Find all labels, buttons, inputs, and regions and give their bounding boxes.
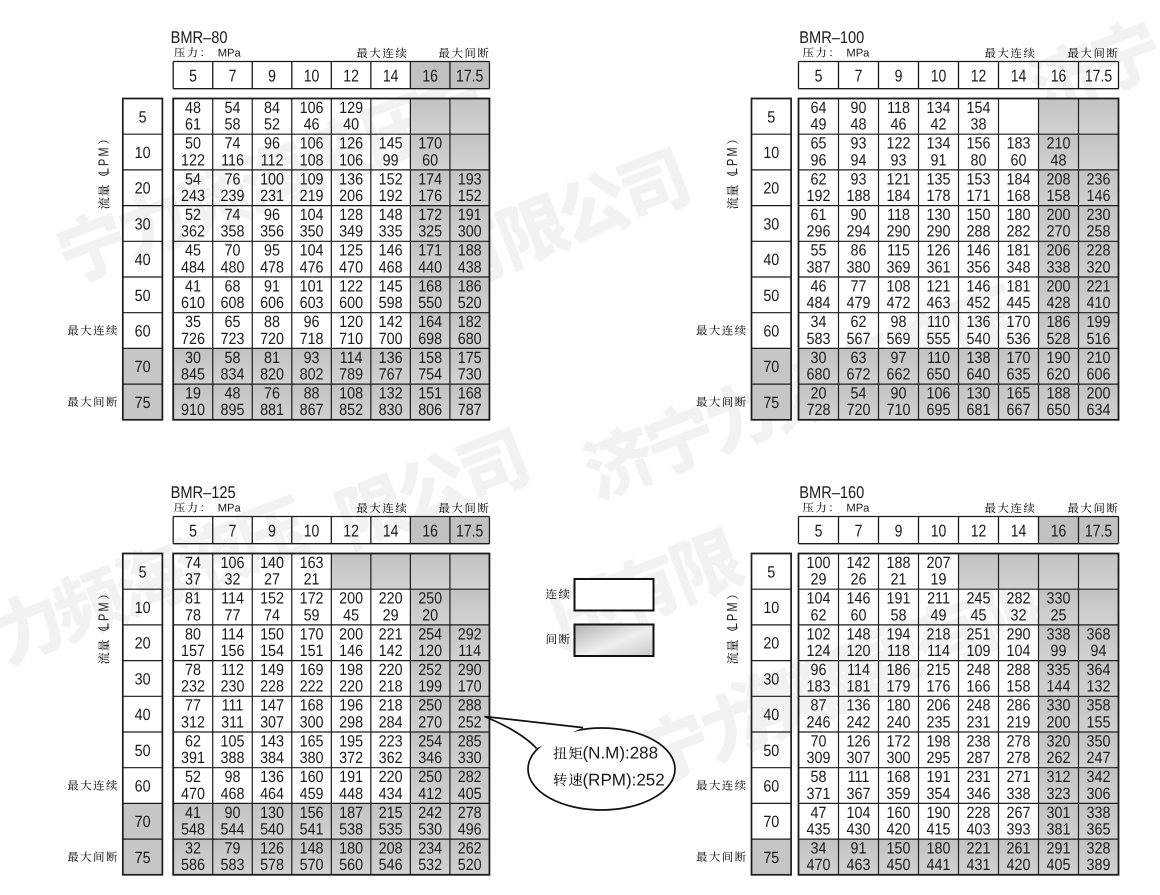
svg-text:228: 228 xyxy=(967,804,991,822)
svg-text:231: 231 xyxy=(967,768,991,786)
svg-text:106: 106 xyxy=(339,151,363,169)
svg-text:12: 12 xyxy=(971,66,987,85)
svg-text:41: 41 xyxy=(185,804,201,822)
svg-text:120: 120 xyxy=(339,313,363,331)
svg-text:60: 60 xyxy=(763,777,779,795)
svg-text:68: 68 xyxy=(225,277,241,295)
svg-text:121: 121 xyxy=(887,170,911,188)
svg-text:170: 170 xyxy=(458,678,482,696)
svg-text:248: 248 xyxy=(967,697,991,715)
svg-text:234: 234 xyxy=(418,840,442,858)
svg-text:535: 535 xyxy=(379,821,403,839)
svg-text:220: 220 xyxy=(339,678,363,696)
svg-text:285: 285 xyxy=(458,732,482,750)
svg-text:136: 136 xyxy=(847,697,871,715)
svg-text:191: 191 xyxy=(927,768,951,786)
svg-text:288: 288 xyxy=(458,697,482,715)
svg-text:75: 75 xyxy=(763,849,779,867)
svg-text:58: 58 xyxy=(225,116,241,134)
svg-text:60: 60 xyxy=(422,151,438,169)
svg-text:46: 46 xyxy=(304,116,320,134)
svg-text:104: 104 xyxy=(1007,642,1031,660)
svg-text:246: 246 xyxy=(807,713,831,731)
svg-text:468: 468 xyxy=(379,258,403,276)
svg-text:282: 282 xyxy=(1007,223,1031,241)
svg-text:106: 106 xyxy=(927,385,951,403)
svg-text:470: 470 xyxy=(807,856,831,874)
svg-text:10: 10 xyxy=(304,66,320,85)
svg-text:218: 218 xyxy=(379,678,403,696)
svg-text:70: 70 xyxy=(811,732,827,750)
svg-text:183: 183 xyxy=(1007,135,1031,153)
svg-text:330: 330 xyxy=(1047,697,1071,715)
svg-text:166: 166 xyxy=(967,678,991,696)
svg-text:156: 156 xyxy=(300,804,324,822)
svg-text:698: 698 xyxy=(418,330,442,348)
svg-text:767: 767 xyxy=(379,366,403,384)
svg-text:20: 20 xyxy=(422,606,438,624)
svg-text:635: 635 xyxy=(1007,366,1031,384)
svg-text:102: 102 xyxy=(807,625,831,643)
svg-text:222: 222 xyxy=(300,678,324,696)
svg-text:470: 470 xyxy=(339,258,363,276)
svg-text:115: 115 xyxy=(887,242,910,260)
svg-text:114: 114 xyxy=(458,642,481,660)
svg-text:88: 88 xyxy=(304,385,320,403)
svg-text:254: 254 xyxy=(418,625,442,643)
svg-text:243: 243 xyxy=(181,187,205,205)
svg-text:97: 97 xyxy=(891,349,907,367)
svg-text:368: 368 xyxy=(1087,625,1111,643)
svg-text:120: 120 xyxy=(847,642,871,660)
svg-text:152: 152 xyxy=(458,187,482,205)
svg-text:238: 238 xyxy=(967,732,991,750)
svg-text:210: 210 xyxy=(1047,135,1071,153)
svg-text:163: 163 xyxy=(300,554,324,572)
svg-text:191: 191 xyxy=(887,590,911,608)
svg-text:80: 80 xyxy=(185,625,201,643)
svg-text:138: 138 xyxy=(967,349,991,367)
svg-text:144: 144 xyxy=(1047,678,1071,696)
svg-text:40: 40 xyxy=(763,251,779,269)
svg-text:111: 111 xyxy=(848,768,870,786)
svg-text:845: 845 xyxy=(181,366,205,384)
svg-text:207: 207 xyxy=(927,554,951,572)
svg-text:5: 5 xyxy=(139,563,147,581)
svg-text:17.5: 17.5 xyxy=(456,521,483,540)
svg-text:544: 544 xyxy=(221,821,245,839)
svg-text:484: 484 xyxy=(807,294,831,312)
svg-text:101: 101 xyxy=(300,277,324,295)
svg-text:10: 10 xyxy=(931,66,947,85)
svg-text:99: 99 xyxy=(383,151,399,169)
svg-text:93: 93 xyxy=(851,135,867,153)
svg-text:387: 387 xyxy=(807,258,831,276)
svg-text:BMR–80: BMR–80 xyxy=(171,28,228,47)
svg-text:710: 710 xyxy=(339,330,363,348)
svg-text:295: 295 xyxy=(927,749,951,767)
svg-text:(N.M):288: (N.M):288 xyxy=(583,743,659,762)
svg-text:298: 298 xyxy=(339,713,363,731)
svg-text:335: 335 xyxy=(1047,661,1071,679)
svg-text:231: 231 xyxy=(967,713,991,731)
svg-text:541: 541 xyxy=(300,821,324,839)
svg-text:528: 528 xyxy=(1047,330,1071,348)
svg-text:194: 194 xyxy=(887,625,911,643)
svg-text:77: 77 xyxy=(185,697,201,715)
svg-text:384: 384 xyxy=(260,749,284,767)
svg-text:104: 104 xyxy=(807,590,831,608)
svg-text:211: 211 xyxy=(927,590,950,608)
svg-text:440: 440 xyxy=(418,258,442,276)
svg-text:BMR–125: BMR–125 xyxy=(171,483,236,502)
svg-text:96: 96 xyxy=(811,661,827,679)
svg-text:87: 87 xyxy=(811,697,827,715)
svg-text:29: 29 xyxy=(811,571,827,589)
svg-text:538: 538 xyxy=(339,821,363,839)
svg-text:290: 290 xyxy=(887,223,911,241)
svg-text:5: 5 xyxy=(189,66,197,85)
svg-text:114: 114 xyxy=(847,661,870,679)
svg-text:206: 206 xyxy=(1047,242,1071,260)
svg-text:415: 415 xyxy=(927,821,951,839)
svg-text:93: 93 xyxy=(851,170,867,188)
svg-text:14: 14 xyxy=(1011,521,1027,540)
svg-text:371: 371 xyxy=(807,785,831,803)
svg-text:74: 74 xyxy=(264,606,280,624)
svg-text:LPM: LPM xyxy=(725,600,741,629)
svg-text:21: 21 xyxy=(304,571,320,589)
svg-text:170: 170 xyxy=(1007,349,1031,367)
svg-text:49: 49 xyxy=(931,606,947,624)
svg-text:106: 106 xyxy=(300,135,324,153)
svg-text:464: 464 xyxy=(260,785,284,803)
svg-text:60: 60 xyxy=(851,606,867,624)
svg-text:95: 95 xyxy=(264,242,280,260)
svg-text:145: 145 xyxy=(379,277,403,295)
svg-text:720: 720 xyxy=(260,330,284,348)
svg-text:130: 130 xyxy=(967,385,991,403)
svg-text:389: 389 xyxy=(1087,856,1111,874)
svg-text:520: 520 xyxy=(458,856,482,874)
svg-text:152: 152 xyxy=(379,170,403,188)
svg-text:146: 146 xyxy=(1087,187,1111,205)
svg-text:150: 150 xyxy=(887,840,911,858)
svg-text:10: 10 xyxy=(304,521,320,540)
svg-text:132: 132 xyxy=(379,385,403,403)
svg-text:381: 381 xyxy=(1047,821,1071,839)
svg-text:126: 126 xyxy=(847,732,871,750)
svg-text:311: 311 xyxy=(221,713,244,731)
svg-text:140: 140 xyxy=(260,554,284,572)
svg-text:10: 10 xyxy=(931,521,947,540)
svg-text:718: 718 xyxy=(300,330,324,348)
svg-text:46: 46 xyxy=(811,277,827,295)
svg-text:156: 156 xyxy=(221,642,245,660)
svg-text:438: 438 xyxy=(458,258,482,276)
svg-text:364: 364 xyxy=(1087,661,1111,679)
svg-text:65: 65 xyxy=(225,313,241,331)
svg-text:219: 219 xyxy=(300,187,324,205)
svg-text:300: 300 xyxy=(458,223,482,241)
svg-text:192: 192 xyxy=(379,187,403,205)
svg-text:330: 330 xyxy=(458,749,482,767)
svg-text:188: 188 xyxy=(847,187,871,205)
svg-text:142: 142 xyxy=(379,642,403,660)
svg-text:362: 362 xyxy=(181,223,205,241)
svg-text:BMR–100: BMR–100 xyxy=(799,28,864,47)
svg-text:136: 136 xyxy=(260,768,284,786)
svg-text:48: 48 xyxy=(1051,151,1067,169)
svg-text:146: 146 xyxy=(379,242,403,260)
svg-text:60: 60 xyxy=(135,777,151,795)
svg-text:47: 47 xyxy=(811,804,827,822)
svg-text:84: 84 xyxy=(264,99,280,117)
svg-text:728: 728 xyxy=(807,401,831,419)
svg-text:168: 168 xyxy=(458,385,482,403)
svg-text:48: 48 xyxy=(185,99,201,117)
svg-text:126: 126 xyxy=(927,242,951,260)
svg-text:148: 148 xyxy=(300,840,324,858)
svg-text:463: 463 xyxy=(927,294,951,312)
svg-text:307: 307 xyxy=(847,749,871,767)
svg-text:108: 108 xyxy=(339,385,363,403)
svg-text:470: 470 xyxy=(181,785,205,803)
svg-text:380: 380 xyxy=(847,258,871,276)
svg-text:106: 106 xyxy=(300,99,324,117)
svg-text:300: 300 xyxy=(887,749,911,767)
svg-text:7: 7 xyxy=(855,66,863,85)
svg-text:46: 46 xyxy=(891,116,907,134)
svg-text:288: 288 xyxy=(1007,661,1031,679)
svg-text:100: 100 xyxy=(260,170,284,188)
svg-text:7: 7 xyxy=(855,521,863,540)
svg-text:365: 365 xyxy=(1087,821,1111,839)
svg-text:516: 516 xyxy=(1087,330,1111,348)
svg-text:160: 160 xyxy=(887,804,911,822)
svg-text:228: 228 xyxy=(260,678,284,696)
svg-text:145: 145 xyxy=(379,135,403,153)
svg-text:34: 34 xyxy=(811,313,827,331)
svg-text:64: 64 xyxy=(811,99,827,117)
svg-text:292: 292 xyxy=(458,625,482,643)
svg-text:230: 230 xyxy=(221,678,245,696)
svg-text:192: 192 xyxy=(807,187,831,205)
svg-text:567: 567 xyxy=(847,330,871,348)
svg-text:598: 598 xyxy=(379,294,403,312)
svg-text:86: 86 xyxy=(851,242,867,260)
svg-text:358: 358 xyxy=(221,223,245,241)
svg-text:634: 634 xyxy=(1087,401,1111,419)
svg-text:128: 128 xyxy=(339,206,363,224)
svg-text:32: 32 xyxy=(185,840,201,858)
svg-text:181: 181 xyxy=(847,678,871,696)
svg-text:122: 122 xyxy=(181,151,205,169)
svg-text:94: 94 xyxy=(1091,642,1107,660)
svg-text:129: 129 xyxy=(339,99,363,117)
svg-text:290: 290 xyxy=(458,661,482,679)
svg-text:134: 134 xyxy=(927,135,951,153)
svg-text:358: 358 xyxy=(1087,697,1111,715)
svg-text:170: 170 xyxy=(418,135,442,153)
svg-text:37: 37 xyxy=(185,571,201,589)
svg-text:420: 420 xyxy=(887,821,911,839)
svg-text:190: 190 xyxy=(927,804,951,822)
svg-text:361: 361 xyxy=(927,258,951,276)
svg-text:75: 75 xyxy=(135,394,151,412)
svg-text:190: 190 xyxy=(1047,349,1071,367)
svg-text:198: 198 xyxy=(339,661,363,679)
svg-text:30: 30 xyxy=(185,349,201,367)
svg-text:252: 252 xyxy=(458,713,482,731)
svg-text:104: 104 xyxy=(300,206,324,224)
svg-text:50: 50 xyxy=(135,742,151,760)
svg-text:286: 286 xyxy=(1007,697,1031,715)
svg-text:420: 420 xyxy=(1007,856,1031,874)
svg-text:50: 50 xyxy=(135,287,151,305)
svg-text:290: 290 xyxy=(1007,625,1031,643)
svg-text:200: 200 xyxy=(1087,385,1111,403)
svg-text:34: 34 xyxy=(811,840,827,858)
svg-text:146: 146 xyxy=(339,642,363,660)
svg-text:77: 77 xyxy=(225,606,241,624)
svg-text:17.5: 17.5 xyxy=(456,66,483,85)
svg-text:476: 476 xyxy=(300,258,324,276)
svg-text:403: 403 xyxy=(967,821,991,839)
svg-text:251: 251 xyxy=(967,625,991,643)
svg-text:30: 30 xyxy=(763,670,779,688)
svg-text:434: 434 xyxy=(379,785,403,803)
svg-text:600: 600 xyxy=(339,294,363,312)
svg-text:26: 26 xyxy=(851,571,867,589)
svg-text:172: 172 xyxy=(887,732,911,750)
svg-text:157: 157 xyxy=(181,642,205,660)
svg-text:91: 91 xyxy=(264,277,280,295)
svg-text:14: 14 xyxy=(383,521,399,540)
svg-text:338: 338 xyxy=(1047,258,1071,276)
svg-text:20: 20 xyxy=(763,180,779,198)
svg-text:820: 820 xyxy=(260,366,284,384)
svg-text:180: 180 xyxy=(339,840,363,858)
svg-text:218: 218 xyxy=(927,625,951,643)
svg-text:250: 250 xyxy=(418,768,442,786)
svg-text:176: 176 xyxy=(418,187,442,205)
svg-text:463: 463 xyxy=(847,856,871,874)
svg-text:530: 530 xyxy=(418,821,442,839)
svg-text:170: 170 xyxy=(1007,313,1031,331)
svg-text:99: 99 xyxy=(1051,642,1067,660)
svg-text:496: 496 xyxy=(458,821,482,839)
svg-text:210: 210 xyxy=(1087,349,1111,367)
svg-text:445: 445 xyxy=(1007,294,1031,312)
svg-text:294: 294 xyxy=(847,223,871,241)
svg-text:132: 132 xyxy=(1087,678,1111,696)
svg-text:114: 114 xyxy=(221,590,244,608)
svg-text:200: 200 xyxy=(1047,277,1071,295)
svg-text:104: 104 xyxy=(300,242,324,260)
svg-text:76: 76 xyxy=(225,170,241,188)
svg-text:188: 188 xyxy=(458,242,482,260)
svg-text:802: 802 xyxy=(300,366,324,384)
svg-text:LPM: LPM xyxy=(725,145,741,174)
svg-text:5: 5 xyxy=(767,108,775,126)
svg-text:448: 448 xyxy=(339,785,363,803)
svg-text:146: 146 xyxy=(967,277,991,295)
svg-text:479: 479 xyxy=(847,294,871,312)
svg-text:52: 52 xyxy=(264,116,280,134)
svg-text:90: 90 xyxy=(225,804,241,822)
svg-text:282: 282 xyxy=(458,768,482,786)
svg-text:350: 350 xyxy=(300,223,324,241)
svg-text:9: 9 xyxy=(268,521,276,540)
svg-text:546: 546 xyxy=(379,856,403,874)
svg-text:215: 215 xyxy=(379,804,403,822)
svg-text:242: 242 xyxy=(418,804,442,822)
svg-text:125: 125 xyxy=(339,242,363,260)
svg-text:(RPM):252: (RPM):252 xyxy=(583,770,665,789)
svg-text:54: 54 xyxy=(225,99,241,117)
svg-text:452: 452 xyxy=(967,294,991,312)
svg-text:48: 48 xyxy=(851,116,867,134)
svg-text:188: 188 xyxy=(1047,385,1071,403)
svg-text:30: 30 xyxy=(135,215,151,233)
svg-text:650: 650 xyxy=(1047,401,1071,419)
svg-text:170: 170 xyxy=(300,625,324,643)
svg-text:570: 570 xyxy=(300,856,324,874)
svg-text:BMR–160: BMR–160 xyxy=(799,483,864,502)
svg-text:109: 109 xyxy=(300,170,324,188)
svg-text:93: 93 xyxy=(891,151,907,169)
svg-text:431: 431 xyxy=(967,856,991,874)
svg-text:48: 48 xyxy=(225,385,241,403)
svg-text:122: 122 xyxy=(339,277,363,295)
svg-text:245: 245 xyxy=(967,590,991,608)
svg-text:75: 75 xyxy=(763,394,779,412)
svg-text:183: 183 xyxy=(807,678,831,696)
svg-text:288: 288 xyxy=(967,223,991,241)
svg-text:35: 35 xyxy=(185,313,201,331)
svg-text:9: 9 xyxy=(895,66,903,85)
svg-text:393: 393 xyxy=(1007,821,1031,839)
svg-text:367: 367 xyxy=(847,785,871,803)
svg-text:536: 536 xyxy=(1007,330,1031,348)
svg-text:720: 720 xyxy=(847,401,871,419)
svg-text:111: 111 xyxy=(222,697,244,715)
svg-text:191: 191 xyxy=(458,206,482,224)
svg-text:405: 405 xyxy=(1047,856,1071,874)
svg-text:695: 695 xyxy=(927,401,951,419)
svg-text:9: 9 xyxy=(895,521,903,540)
svg-text:650: 650 xyxy=(927,366,951,384)
svg-text:754: 754 xyxy=(418,366,442,384)
svg-text:130: 130 xyxy=(927,206,951,224)
svg-text:142: 142 xyxy=(847,554,871,572)
svg-text:182: 182 xyxy=(458,313,482,331)
svg-text:306: 306 xyxy=(1087,785,1111,803)
svg-text:81: 81 xyxy=(264,349,280,367)
svg-text:478: 478 xyxy=(260,258,284,276)
svg-text:435: 435 xyxy=(807,821,831,839)
svg-text:7: 7 xyxy=(229,66,237,85)
svg-text:240: 240 xyxy=(887,713,911,731)
svg-text:41: 41 xyxy=(185,277,201,295)
svg-text:231: 231 xyxy=(260,187,284,205)
svg-text:252: 252 xyxy=(418,661,442,679)
svg-text:540: 540 xyxy=(260,821,284,839)
svg-text:165: 165 xyxy=(300,732,324,750)
svg-text:146: 146 xyxy=(847,590,871,608)
svg-text:223: 223 xyxy=(379,732,403,750)
